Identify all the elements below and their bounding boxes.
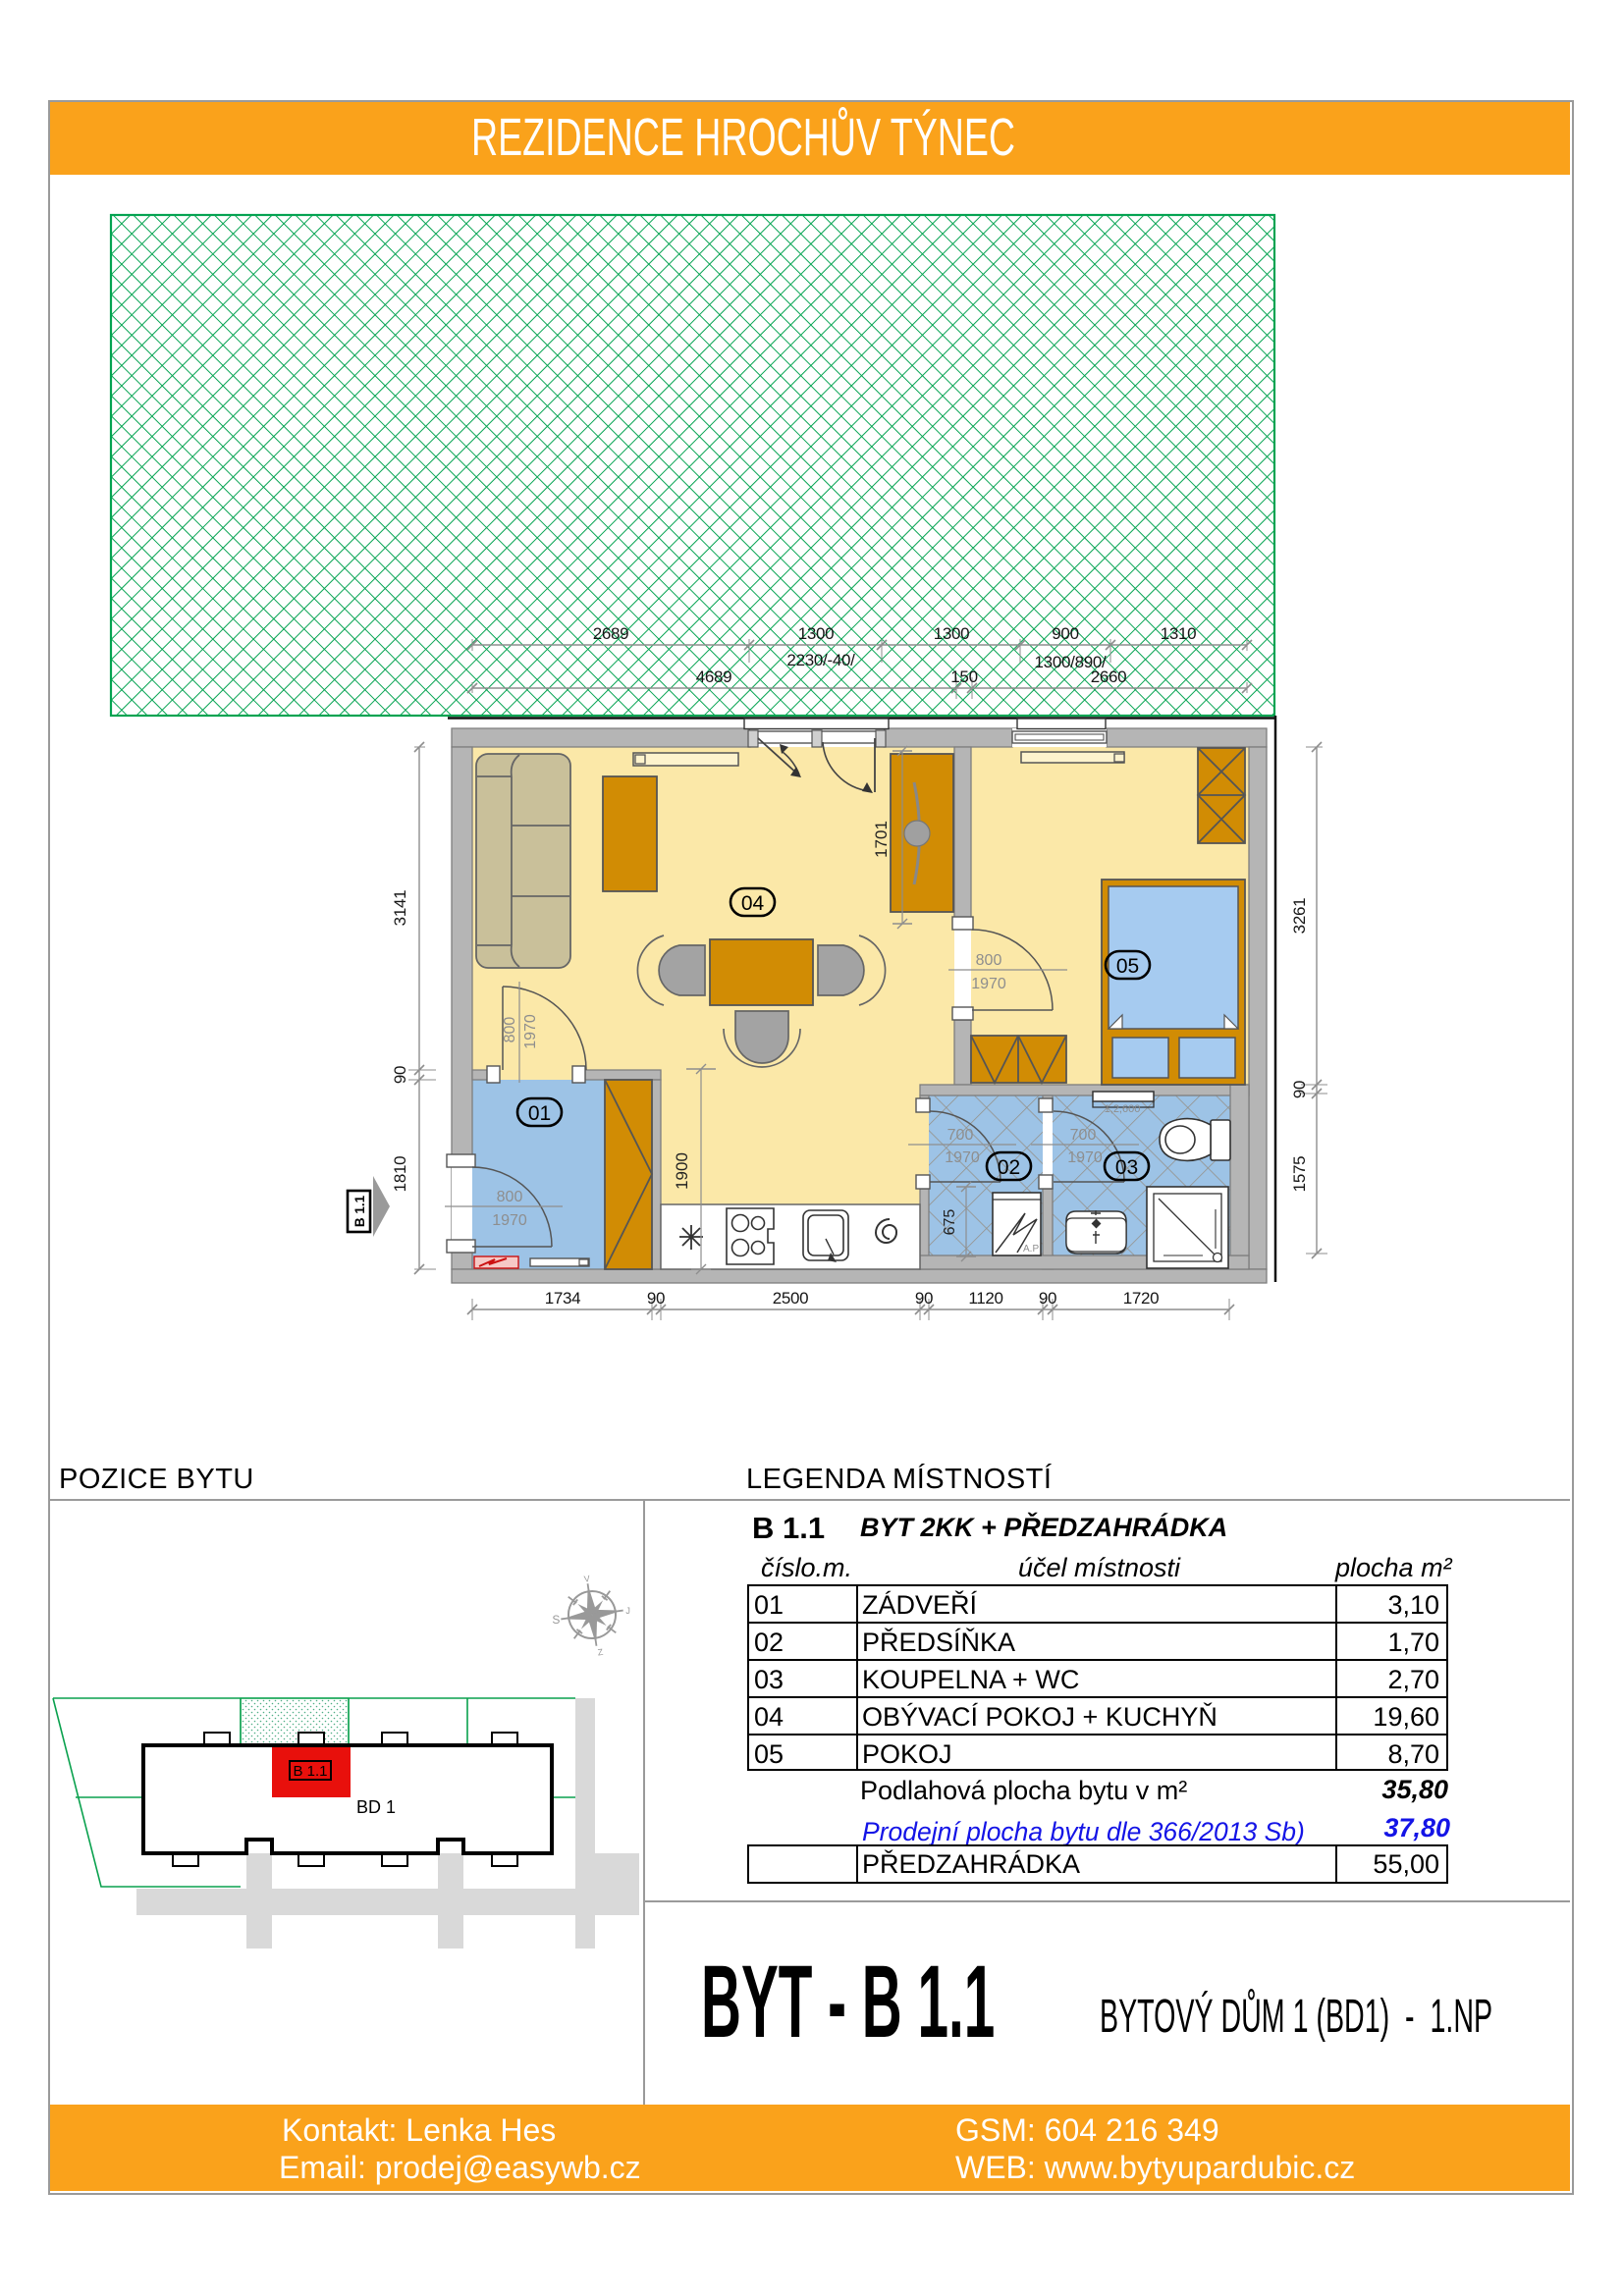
svg-text:700: 700 (947, 1127, 974, 1144)
svg-text:1970: 1970 (1067, 1149, 1103, 1166)
svg-text:A.P: A.P (1023, 1244, 1039, 1255)
svg-text:2230/-40/: 2230/-40/ (786, 651, 855, 669)
svg-text:1720: 1720 (1123, 1289, 1160, 1308)
svg-text:1300: 1300 (798, 624, 835, 643)
svg-text:03: 03 (1115, 1156, 1138, 1179)
svg-text:1900: 1900 (673, 1152, 691, 1190)
svg-text:2660: 2660 (1091, 667, 1127, 686)
svg-text:BD 1: BD 1 (356, 1797, 396, 1817)
svg-text:90: 90 (647, 1289, 665, 1308)
svg-text:1701: 1701 (872, 821, 891, 858)
svg-text:2689: 2689 (593, 624, 629, 643)
svg-text:90: 90 (1290, 1081, 1309, 1098)
svg-text:90: 90 (391, 1066, 409, 1084)
svg-text:1120: 1120 (968, 1289, 1002, 1308)
svg-text:Z: Z (597, 1647, 604, 1658)
svg-text:1,2,600: 1,2,600 (1105, 1103, 1141, 1115)
svg-text:2500: 2500 (773, 1289, 809, 1308)
svg-text:800: 800 (502, 1017, 518, 1043)
svg-text:04: 04 (741, 892, 765, 915)
svg-text:1970: 1970 (945, 1149, 980, 1166)
svg-text:1970: 1970 (492, 1212, 527, 1229)
svg-text:1310: 1310 (1161, 624, 1197, 643)
svg-text:700: 700 (1070, 1127, 1097, 1144)
svg-text:900: 900 (1052, 624, 1078, 643)
svg-text:800: 800 (497, 1189, 523, 1205)
svg-text:1970: 1970 (522, 1014, 539, 1049)
svg-text:675: 675 (942, 1209, 958, 1236)
svg-text:1300: 1300 (934, 624, 970, 643)
svg-text:B 1.1: B 1.1 (352, 1195, 367, 1227)
svg-text:B 1.1: B 1.1 (293, 1763, 327, 1780)
svg-text:90: 90 (915, 1289, 933, 1308)
svg-text:3141: 3141 (391, 890, 409, 927)
svg-text:90: 90 (1039, 1289, 1056, 1308)
svg-text:S: S (552, 1613, 560, 1627)
svg-text:V: V (583, 1574, 590, 1584)
svg-text:4689: 4689 (696, 667, 732, 686)
svg-text:05: 05 (1116, 955, 1139, 978)
svg-text:1970: 1970 (971, 976, 1006, 992)
svg-text:3261: 3261 (1290, 898, 1309, 934)
svg-text:J: J (625, 1606, 630, 1616)
svg-text:150: 150 (950, 667, 977, 686)
svg-text:01: 01 (528, 1102, 551, 1125)
svg-text:1575: 1575 (1290, 1156, 1309, 1193)
svg-text:800: 800 (976, 952, 1002, 969)
svg-text:1810: 1810 (391, 1156, 409, 1193)
svg-text:02: 02 (998, 1156, 1020, 1179)
svg-text:1734: 1734 (545, 1289, 581, 1308)
